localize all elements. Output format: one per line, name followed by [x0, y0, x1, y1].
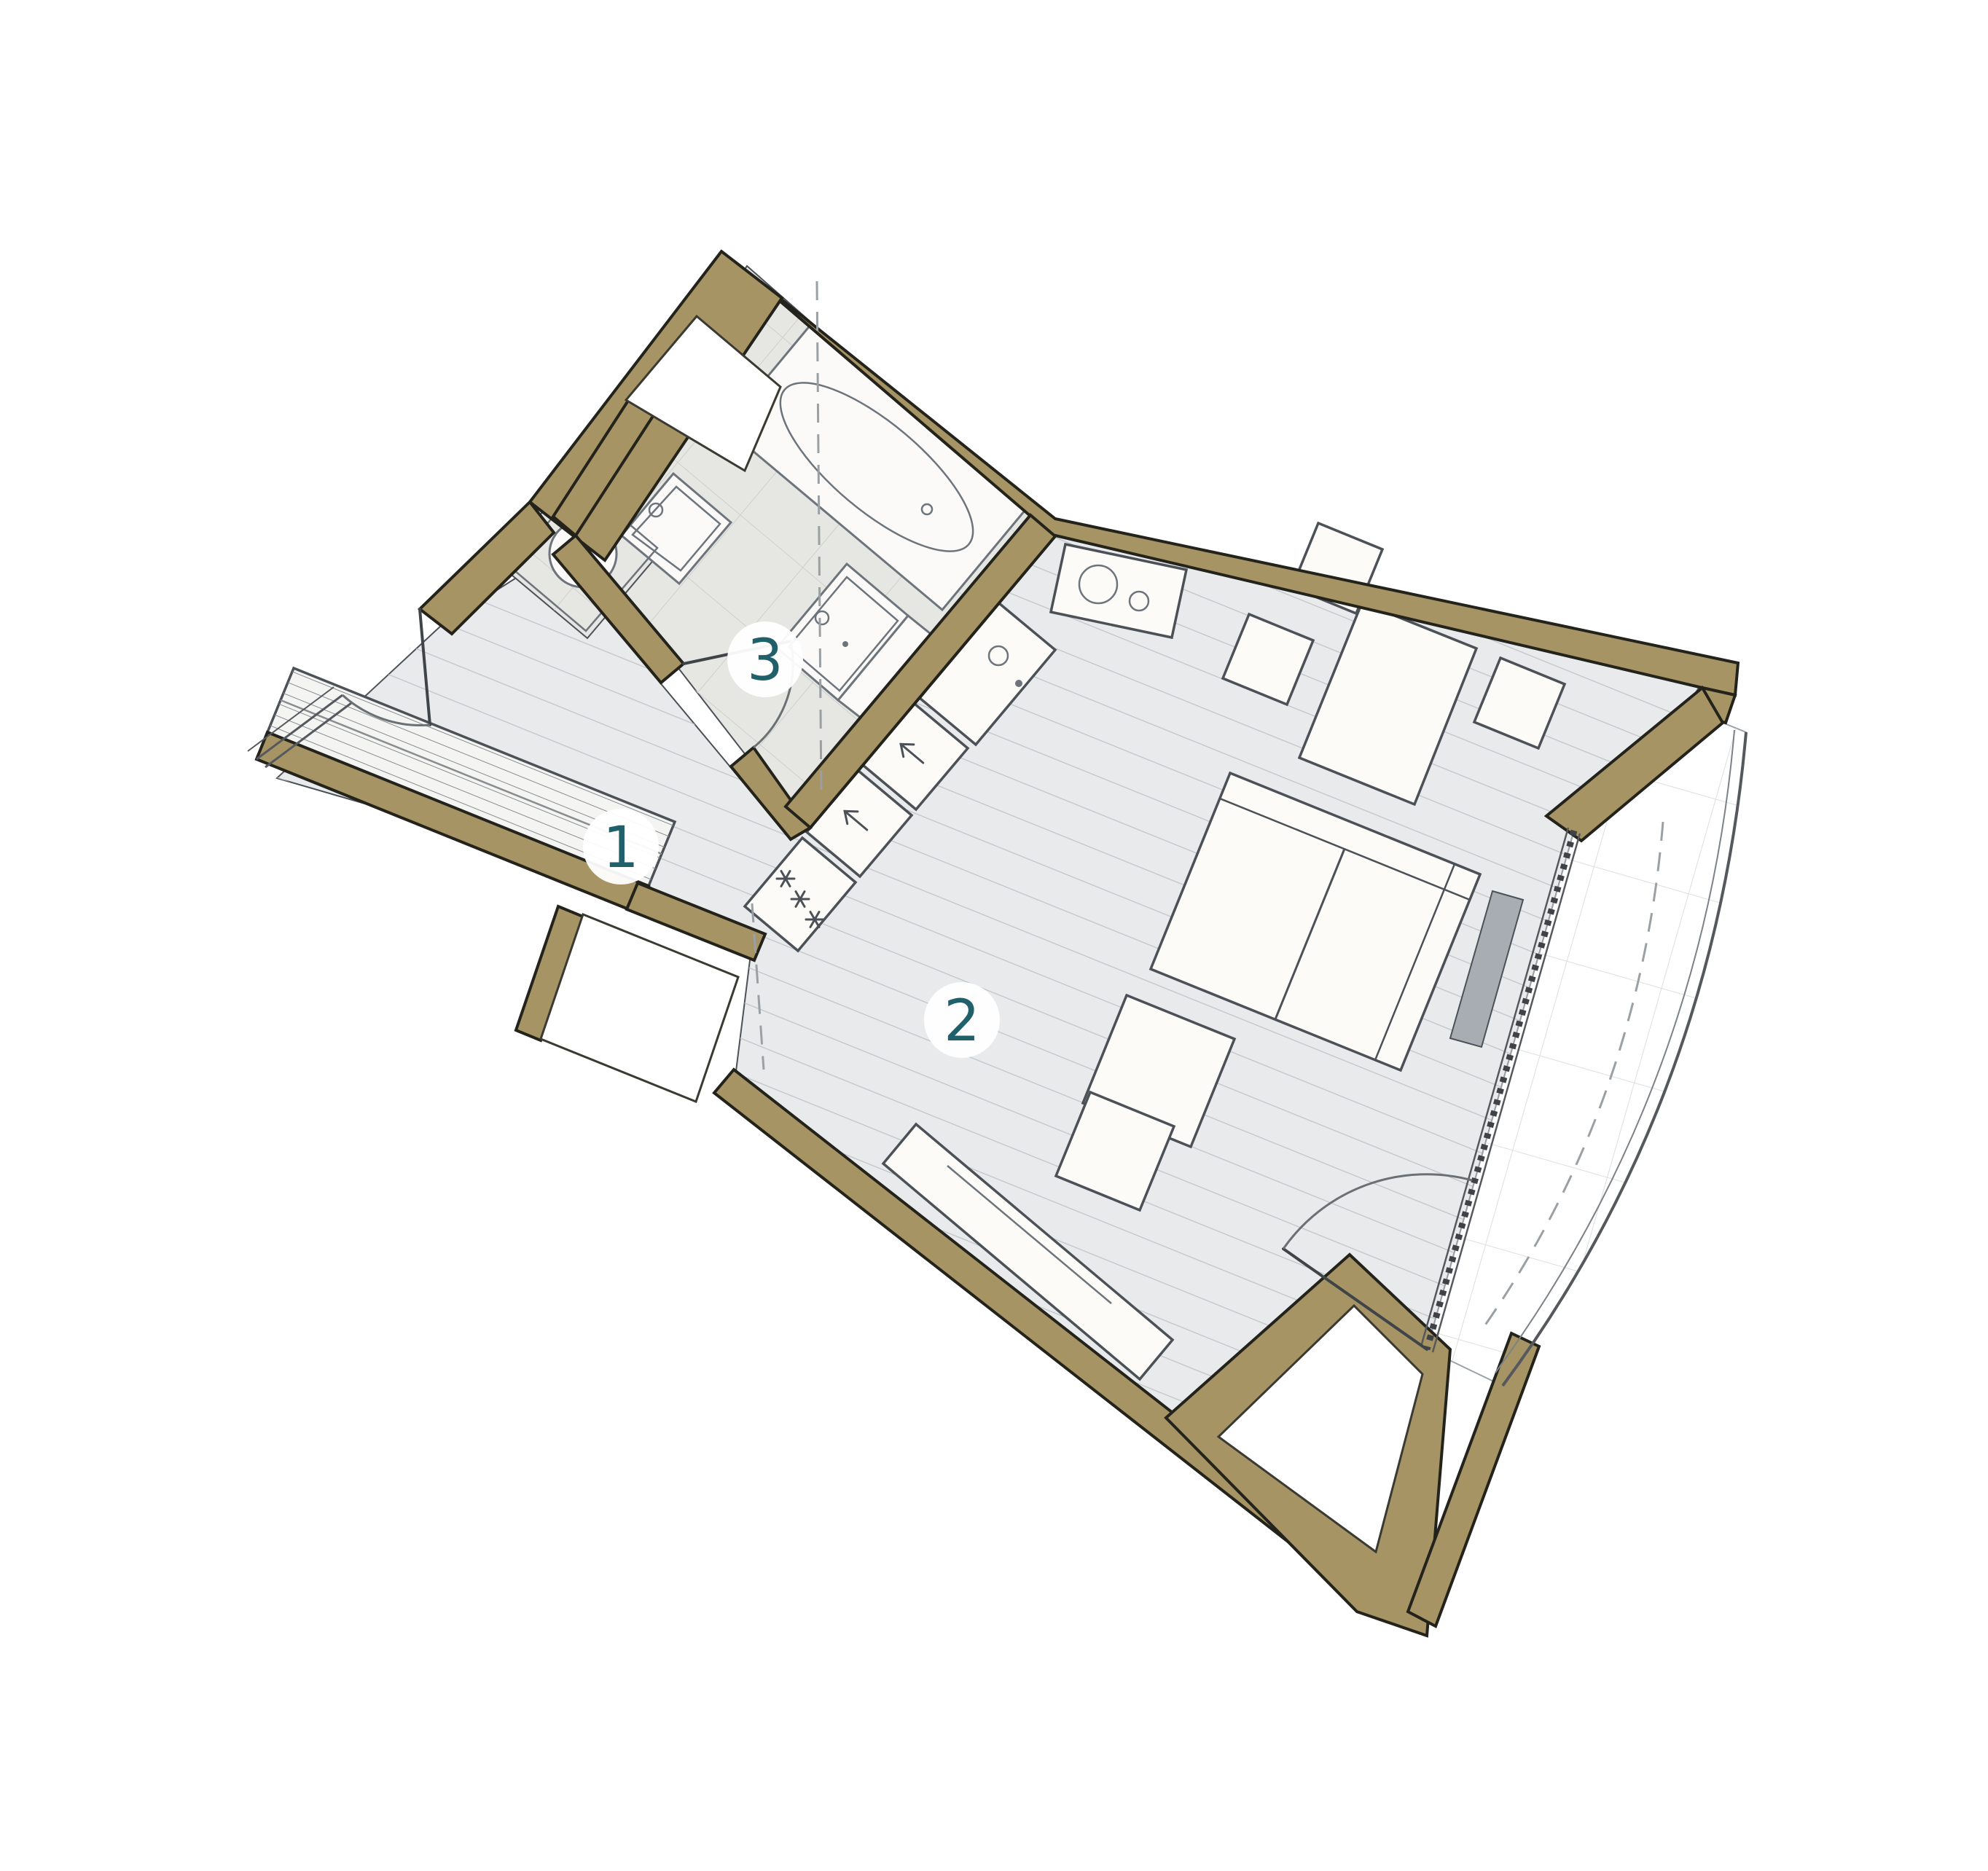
room-badge-1: 1 [583, 809, 659, 884]
floor-plan-page: 1 2 3 [0, 0, 1988, 1871]
floors [277, 266, 1746, 1585]
room-number-1: 1 [603, 815, 639, 881]
floor-plan-drawing: 1 2 3 [0, 0, 1988, 1871]
room-badge-2: 2 [924, 982, 1000, 1058]
room-number-3: 3 [747, 628, 783, 694]
room-number-2: 2 [944, 989, 980, 1054]
room-badge-3: 3 [727, 621, 803, 697]
